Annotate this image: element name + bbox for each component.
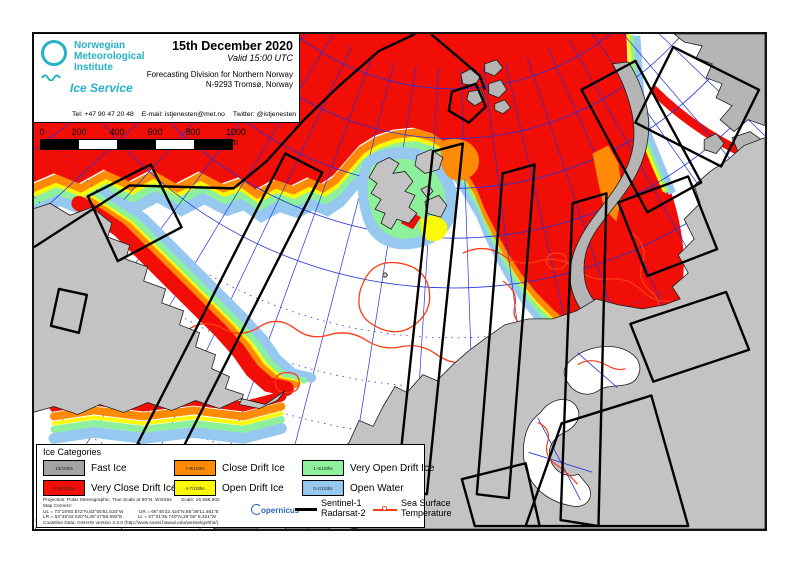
- contact-line: Tel: +47 90 47 20 48 E-mail: istjenesten…: [34, 111, 296, 118]
- open-drift-ice-swatch: 4-7/10ths: [174, 480, 216, 496]
- ice-service-label: Ice Service: [70, 81, 133, 95]
- open-water-swatch: 0-1/10ths: [302, 480, 344, 496]
- legend-title: Ice Categories: [43, 447, 101, 457]
- scale-note: Scale: 16,588,902: [181, 498, 220, 504]
- chart-date: 15th December 2020: [172, 39, 293, 53]
- sst-source-label: Sea Surface Temperature: [401, 499, 452, 518]
- scale-bar-labels: 0 200 400 600 800 1000 km: [40, 127, 246, 138]
- legend-item-very-close-drift-ice: 9-10/10ths Very Close Drift Ice: [43, 478, 174, 498]
- legend-item-fast-ice: 10/10ths Fast Ice: [43, 458, 174, 478]
- copernicus-logo: opernicus: [251, 504, 299, 515]
- twitter: Twitter: @istjenesten: [233, 111, 296, 118]
- wave-icon: [41, 73, 63, 81]
- met-institute-logo-icon: [41, 40, 67, 66]
- legend-sources: opernicus Sentinel-1 Radarsat-2 Sea Surf…: [251, 498, 423, 526]
- legend-item-open-water: 0-1/10ths Open Water: [302, 478, 421, 498]
- legend-fineprint: Projection: Polar Stereographic, True Sc…: [43, 498, 219, 527]
- scale-bar-segments: [40, 139, 233, 150]
- phone: Tel: +47 90 47 20 48: [72, 111, 134, 118]
- scale-bar: 0 200 400 600 800 1000 km: [40, 127, 246, 153]
- org-name: Norwegian Meteorological Institute: [74, 40, 145, 73]
- satellite-line-sample-icon: [295, 508, 317, 511]
- legend-item-open-drift-ice: 4-7/10ths Open Drift Ice: [174, 478, 302, 498]
- legend-item-close-drift-ice: 7-9/10ths Close Drift Ice: [174, 458, 302, 478]
- legend-item-very-open-drift-ice: 1-4/10ths Very Open Drift Ice: [302, 458, 421, 478]
- legend-grid: 10/10ths Fast Ice 7-9/10ths Close Drift …: [43, 458, 421, 498]
- coastline-note: Coastline Data: GSHHS version 2.2.0 (htt…: [43, 521, 219, 527]
- fast-ice-swatch: 10/10ths: [43, 460, 85, 476]
- satellite-source-label: Sentinel-1 Radarsat-2: [321, 499, 366, 518]
- close-drift-ice-swatch: 7-9/10ths: [174, 460, 216, 476]
- division-address: Forecasting Division for Northern Norway…: [147, 70, 293, 89]
- header-box: Norwegian Meteorological Institute Ice S…: [33, 33, 300, 123]
- sst-marker-icon: [382, 506, 387, 511]
- ice-chart-page: Norwegian Meteorological Institute Ice S…: [0, 0, 799, 565]
- very-close-drift-ice-swatch: 9-10/10ths: [43, 480, 85, 496]
- legend-box: Ice Categories 10/10ths Fast Ice 7-9/10t…: [36, 444, 425, 528]
- valid-time: Valid 15:00 UTC: [172, 53, 293, 63]
- email: E-mail: istjenesten@met.no: [142, 111, 225, 118]
- very-open-drift-ice-swatch: 1-4/10ths: [302, 460, 344, 476]
